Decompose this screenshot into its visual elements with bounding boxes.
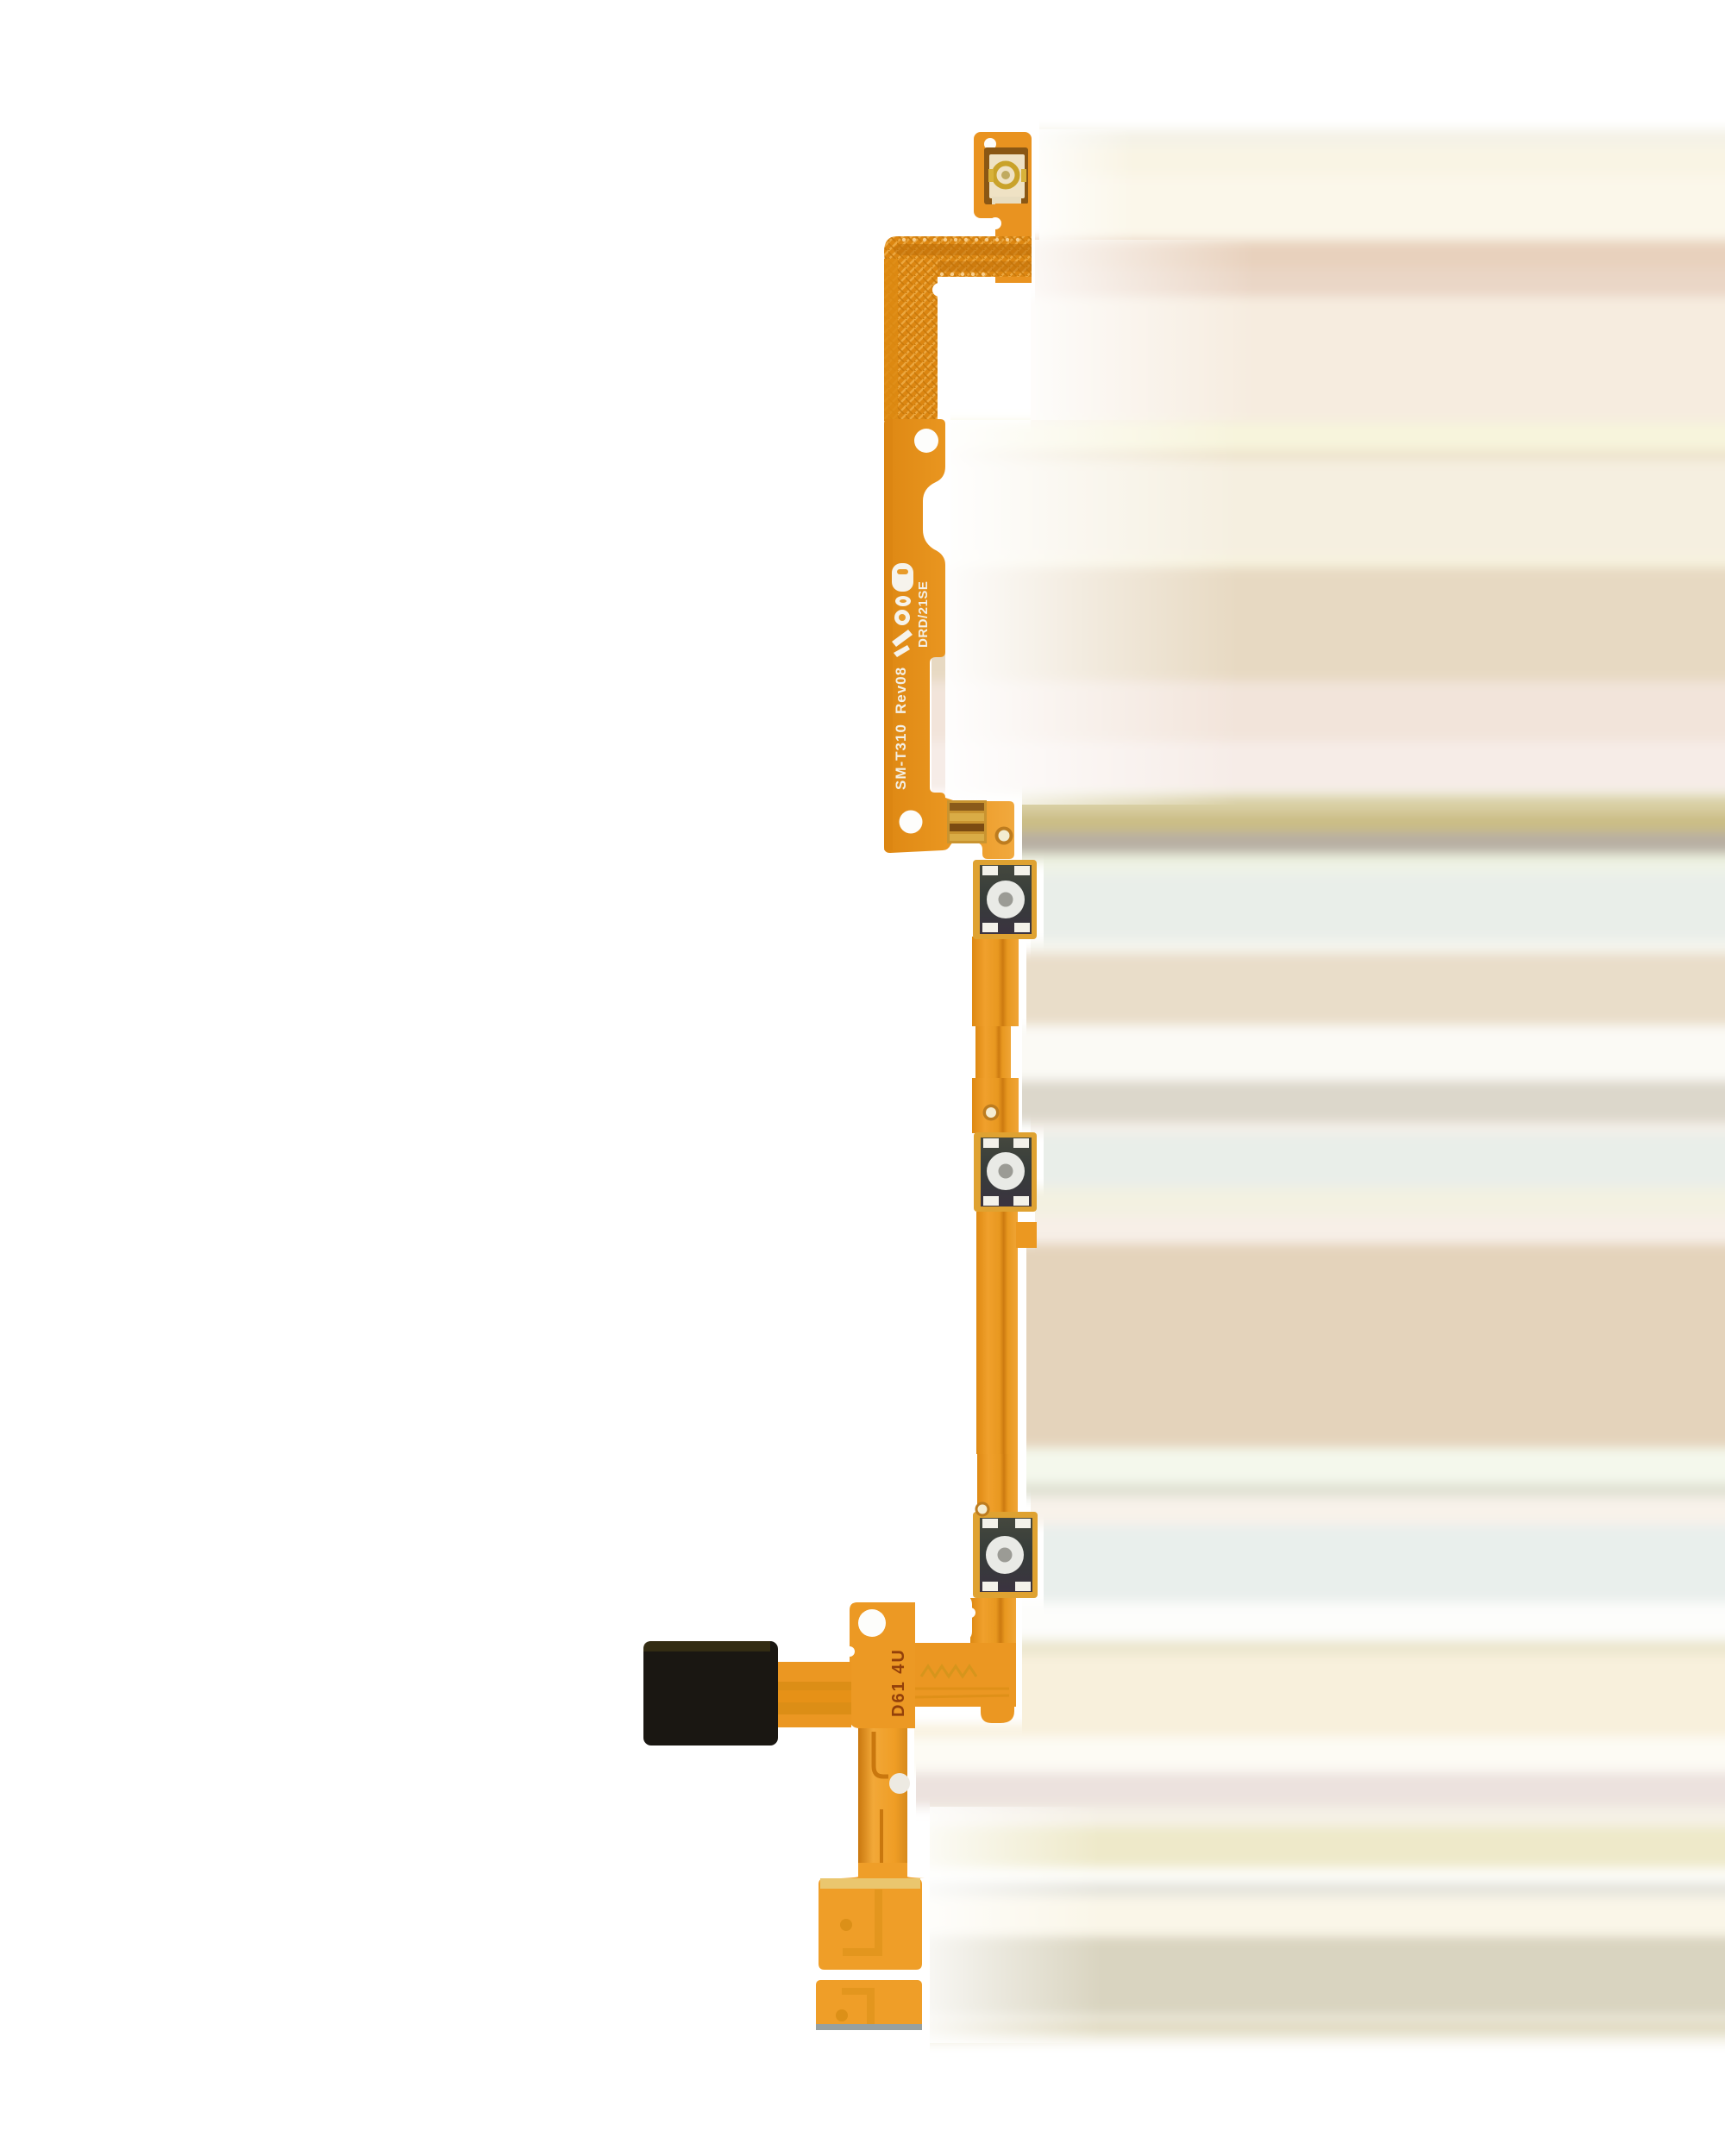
svg-text:SM-T310: SM-T310 <box>893 724 909 790</box>
svg-text:DRD/21SE: DRD/21SE <box>916 581 931 648</box>
svg-text:Rev08: Rev08 <box>893 667 909 714</box>
svg-text:D61 4U: D61 4U <box>889 1648 908 1717</box>
